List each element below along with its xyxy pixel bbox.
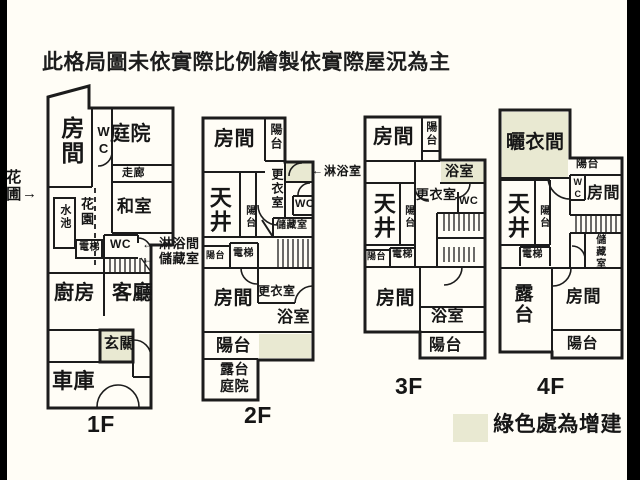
room-label-bedroom-top-2f: 房間 <box>214 129 255 151</box>
room-label-wc-2f: WC <box>295 199 314 211</box>
room-label-elevator-1f: 電梯 <box>79 243 100 254</box>
balcony-addition-highlight <box>259 334 311 358</box>
floor-label-1f: 1F <box>87 412 115 437</box>
room-label-balcony-bottom-3f: 陽台 <box>429 337 462 354</box>
legend-addition-swatch <box>453 414 488 442</box>
room-label-wc-top-1f: WC <box>96 124 110 158</box>
room-label-kitchen-1f: 廚房 <box>54 283 95 305</box>
room-label-bedroom-top-3f: 房間 <box>373 127 414 149</box>
legend-label: 綠色處為增建 <box>493 414 622 437</box>
room-label-drying-room-4f: 曬衣間 <box>506 133 565 154</box>
room-label-courtyard-1f: 庭院 <box>110 124 151 146</box>
room-label-bath-top-3f: 浴室 <box>445 164 474 179</box>
arrow-left-icon: ← <box>142 238 155 251</box>
room-label-terrace-court-2f: 庭院 <box>220 379 249 394</box>
room-label-garden-1f: 花園 <box>79 197 93 227</box>
room-label-dressing-bottom-2f: 更衣室 <box>258 285 296 298</box>
callout-shower-1f: 淋浴間 <box>159 237 200 251</box>
arrow-right-icon: → <box>22 186 38 202</box>
room-label-wc-1f: WC <box>110 238 131 251</box>
room-label-tatami-1f: 和室 <box>117 198 152 216</box>
room-label-balcony-small-2f: 陽台 <box>206 251 225 261</box>
room-label-balcony-bottom-4f: 陽台 <box>567 336 598 352</box>
floorplan-diagram: 此格局圖未依實際比例繪製依實際屋況為主 房間 WC 庭院 走廊 水池 花園 和室… <box>0 0 640 480</box>
room-label-living-1f: 客廳 <box>112 283 153 305</box>
room-label-balcony-bottom-2f: 陽台 <box>216 337 251 355</box>
room-label-balcony-mid-2f: 陽台 <box>243 205 254 229</box>
floor-label-3f: 3F <box>395 374 423 399</box>
room-label-balcony-mid-4f: 陽台 <box>537 205 548 229</box>
page-title: 此格局圖未依實際比例繪製依實際屋況為主 <box>42 52 451 75</box>
room-label-wc-3f: WC <box>459 196 478 208</box>
room-label-atrium-4f: 天井 <box>505 192 529 240</box>
arrow-left-icon: ← <box>142 253 155 266</box>
room-label-bedroom-1f: 房間 <box>58 116 83 166</box>
room-label-atrium-2f: 天井 <box>207 186 231 234</box>
room-label-dressing-top-2f: 更衣室 <box>270 168 283 210</box>
floor-label-2f: 2F <box>244 403 272 428</box>
room-label-bath-bottom-3f: 浴室 <box>431 308 464 325</box>
room-label-elevator-3f: 電梯 <box>392 250 413 261</box>
room-label-bedroom-bottom-2f: 房間 <box>214 289 253 310</box>
room-label-wc-4f: WC <box>572 177 582 201</box>
room-label-pond-1f: 水池 <box>58 204 70 230</box>
right-black-bar <box>627 0 640 480</box>
room-label-atrium-3f: 天井 <box>371 192 395 240</box>
room-label-dressing-3f: 更衣室 <box>416 188 457 202</box>
room-label-balcony-top-3f: 陽台 <box>424 121 436 147</box>
room-label-terrace-2f: 露台 <box>220 362 249 377</box>
callout-shower-2f: 淋浴室 <box>324 165 362 178</box>
room-label-terrace-4f: 露台 <box>511 283 532 325</box>
room-label-storage-4f: 儲藏室 <box>593 234 604 270</box>
arrow-left-icon: ← <box>312 166 324 178</box>
room-label-storage-2f: 儲藏室 <box>276 221 308 232</box>
room-label-elevator-4f: 電梯 <box>522 250 543 261</box>
room-label-balcony-top-4f: 陽台 <box>576 159 599 171</box>
room-label-bedroom-top-4f: 房間 <box>587 185 620 202</box>
room-label-garage-1f: 車庫 <box>52 371 95 394</box>
room-label-balcony-top-2f: 陽台 <box>269 123 282 151</box>
room-label-balcony-mid-3f: 陽台 <box>402 205 413 229</box>
left-black-bar <box>0 0 7 480</box>
room-label-bath-2f: 浴室 <box>277 309 310 326</box>
floor-label-4f: 4F <box>537 374 565 399</box>
room-label-elevator-2f: 電梯 <box>233 249 254 260</box>
room-label-bedroom-bottom-4f: 房間 <box>566 288 601 306</box>
callout-storage-1f: 儲藏室 <box>159 252 200 266</box>
room-label-entry-1f: 玄關 <box>104 336 135 352</box>
room-label-corridor-1f: 走廊 <box>122 168 145 180</box>
room-label-balcony-small-3f: 陽台 <box>367 252 386 262</box>
room-label-bedroom-bottom-3f: 房間 <box>376 289 415 310</box>
